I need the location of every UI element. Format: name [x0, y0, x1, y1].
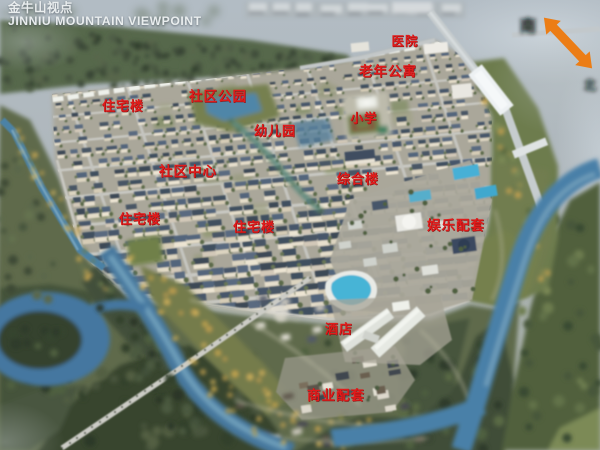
- svg-text:南: 南: [520, 16, 537, 36]
- svg-text:北: 北: [583, 78, 596, 93]
